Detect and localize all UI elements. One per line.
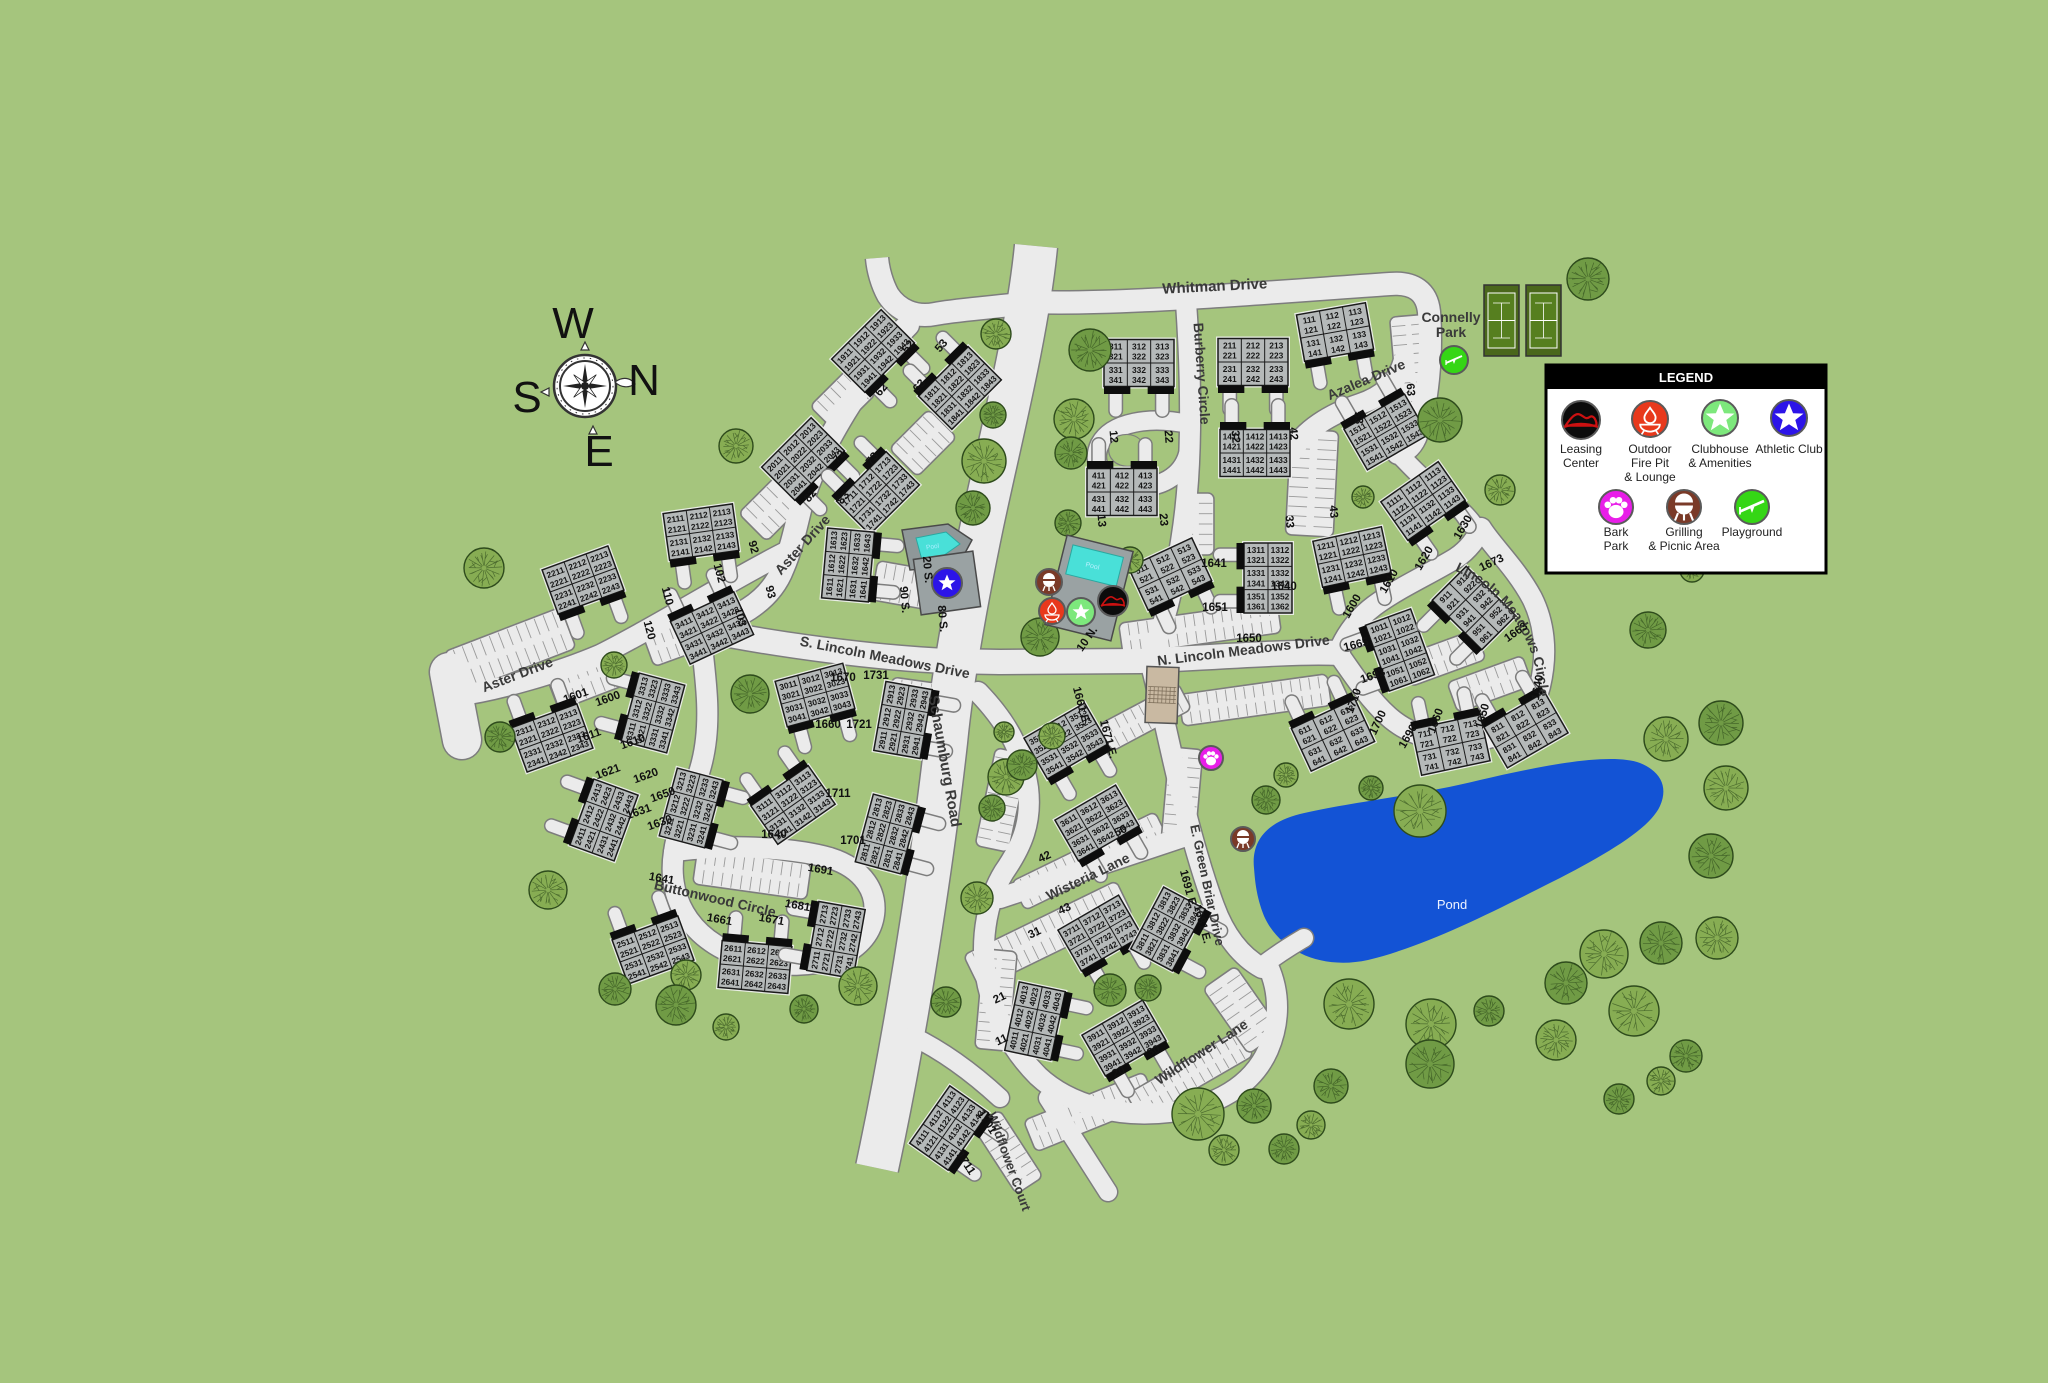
svg-text:222: 222 bbox=[1246, 351, 1260, 361]
svg-text:1352: 1352 bbox=[1271, 592, 1290, 602]
svg-text:1351: 1351 bbox=[1247, 592, 1266, 602]
svg-text:1432: 1432 bbox=[1246, 455, 1265, 465]
svg-text:1621: 1621 bbox=[834, 578, 846, 598]
svg-text:13: 13 bbox=[1094, 514, 1107, 528]
svg-text:Playground: Playground bbox=[1722, 525, 1783, 539]
svg-text:342: 342 bbox=[1132, 375, 1146, 385]
svg-text:1731: 1731 bbox=[863, 670, 889, 682]
svg-text:53: 53 bbox=[1351, 411, 1364, 425]
svg-text:Athletic Club: Athletic Club bbox=[1755, 442, 1823, 456]
svg-text:1622: 1622 bbox=[836, 554, 848, 574]
svg-text:1641: 1641 bbox=[857, 580, 869, 600]
svg-text:1332: 1332 bbox=[1271, 568, 1290, 578]
svg-text:1322: 1322 bbox=[1271, 555, 1290, 565]
svg-text:421: 421 bbox=[1092, 481, 1106, 491]
svg-text:63: 63 bbox=[1403, 383, 1416, 397]
svg-text:32: 32 bbox=[1228, 430, 1241, 444]
svg-text:& Amenities: & Amenities bbox=[1688, 456, 1751, 470]
svg-text:1423: 1423 bbox=[1269, 442, 1288, 452]
svg-text:1650: 1650 bbox=[1236, 633, 1262, 645]
svg-text:312: 312 bbox=[1132, 341, 1146, 351]
svg-text:12: 12 bbox=[1106, 430, 1119, 444]
svg-text:333: 333 bbox=[1155, 365, 1169, 375]
svg-text:2621: 2621 bbox=[723, 953, 743, 965]
svg-text:433: 433 bbox=[1138, 494, 1152, 504]
svg-text:1413: 1413 bbox=[1269, 431, 1288, 441]
svg-text:1640: 1640 bbox=[761, 829, 787, 841]
svg-text:223: 223 bbox=[1269, 351, 1283, 361]
svg-text:1433: 1433 bbox=[1269, 455, 1288, 465]
svg-text:413: 413 bbox=[1138, 470, 1152, 480]
svg-text:1660: 1660 bbox=[815, 719, 841, 731]
svg-text:241: 241 bbox=[1223, 374, 1237, 384]
svg-text:243: 243 bbox=[1269, 374, 1283, 384]
svg-text:E: E bbox=[584, 427, 613, 476]
svg-text:1431: 1431 bbox=[1222, 455, 1241, 465]
svg-text:43: 43 bbox=[1326, 505, 1339, 519]
svg-text:22: 22 bbox=[1161, 430, 1174, 444]
svg-text:2643: 2643 bbox=[767, 980, 787, 992]
svg-text:231: 231 bbox=[1223, 364, 1237, 374]
svg-text:Park: Park bbox=[1604, 539, 1630, 553]
svg-text:Bark: Bark bbox=[1604, 525, 1630, 539]
svg-text:431: 431 bbox=[1092, 494, 1106, 504]
svg-text:1311: 1311 bbox=[1247, 545, 1266, 555]
svg-text:& Picnic Area: & Picnic Area bbox=[1648, 539, 1720, 553]
svg-text:2622: 2622 bbox=[746, 955, 766, 967]
svg-text:1341: 1341 bbox=[1247, 578, 1266, 588]
svg-text:1412: 1412 bbox=[1246, 431, 1265, 441]
svg-text:42: 42 bbox=[1286, 427, 1299, 441]
svg-text:1422: 1422 bbox=[1246, 442, 1265, 452]
svg-text:1312: 1312 bbox=[1271, 545, 1290, 555]
svg-text:432: 432 bbox=[1115, 494, 1129, 504]
svg-text:2642: 2642 bbox=[744, 978, 764, 990]
svg-text:1441: 1441 bbox=[1222, 465, 1241, 475]
svg-text:33: 33 bbox=[1282, 515, 1295, 529]
svg-text:221: 221 bbox=[1223, 351, 1237, 361]
svg-text:422: 422 bbox=[1115, 481, 1129, 491]
svg-text:& Lounge: & Lounge bbox=[1624, 470, 1676, 484]
svg-text:411: 411 bbox=[1092, 470, 1106, 480]
svg-text:322: 322 bbox=[1132, 352, 1146, 362]
svg-text:Grilling: Grilling bbox=[1665, 525, 1702, 539]
svg-text:Outdoor: Outdoor bbox=[1628, 442, 1671, 456]
svg-text:442: 442 bbox=[1115, 504, 1129, 514]
svg-text:90 S.: 90 S. bbox=[897, 586, 911, 614]
svg-text:W: W bbox=[552, 299, 594, 348]
svg-text:1362: 1362 bbox=[1271, 602, 1290, 612]
svg-text:232: 232 bbox=[1246, 364, 1260, 374]
svg-text:N: N bbox=[628, 356, 660, 405]
svg-text:Pond: Pond bbox=[1437, 897, 1467, 912]
svg-text:412: 412 bbox=[1115, 470, 1129, 480]
svg-text:1321: 1321 bbox=[1247, 555, 1266, 565]
svg-text:Leasing: Leasing bbox=[1560, 442, 1602, 456]
svg-text:1721: 1721 bbox=[846, 719, 872, 731]
svg-text:331: 331 bbox=[1109, 365, 1123, 375]
svg-text:323: 323 bbox=[1155, 352, 1169, 362]
svg-text:1442: 1442 bbox=[1246, 465, 1265, 475]
svg-text:1651: 1651 bbox=[1202, 602, 1228, 614]
svg-text:233: 233 bbox=[1269, 364, 1283, 374]
svg-text:LEGEND: LEGEND bbox=[1659, 370, 1713, 385]
svg-text:441: 441 bbox=[1092, 504, 1106, 514]
svg-text:242: 242 bbox=[1246, 374, 1260, 384]
svg-text:1361: 1361 bbox=[1247, 602, 1266, 612]
svg-text:Clubhouse: Clubhouse bbox=[1691, 442, 1749, 456]
svg-text:211: 211 bbox=[1223, 340, 1237, 350]
svg-text:443: 443 bbox=[1138, 504, 1152, 514]
svg-text:S: S bbox=[512, 373, 541, 422]
svg-text:1331: 1331 bbox=[1247, 568, 1266, 578]
svg-text:212: 212 bbox=[1246, 340, 1260, 350]
svg-text:313: 313 bbox=[1155, 341, 1169, 351]
svg-text:1643: 1643 bbox=[861, 533, 873, 553]
svg-text:332: 332 bbox=[1132, 365, 1146, 375]
svg-text:213: 213 bbox=[1269, 340, 1283, 350]
svg-text:341: 341 bbox=[1109, 375, 1123, 385]
svg-text:20 S.: 20 S. bbox=[920, 556, 934, 584]
svg-text:Fire Pit: Fire Pit bbox=[1631, 456, 1670, 470]
svg-text:Center: Center bbox=[1563, 456, 1599, 470]
svg-text:423: 423 bbox=[1138, 481, 1152, 491]
svg-text:1701: 1701 bbox=[840, 835, 866, 847]
svg-text:1641: 1641 bbox=[1201, 558, 1227, 570]
svg-text:1670: 1670 bbox=[830, 672, 856, 684]
svg-text:1443: 1443 bbox=[1269, 465, 1288, 475]
svg-text:1623: 1623 bbox=[838, 531, 850, 551]
svg-text:1640: 1640 bbox=[1271, 581, 1297, 593]
svg-text:80 S.: 80 S. bbox=[935, 605, 949, 633]
svg-text:Connelly: Connelly bbox=[1421, 309, 1480, 325]
svg-text:2641: 2641 bbox=[721, 976, 741, 988]
svg-text:1642: 1642 bbox=[859, 556, 871, 576]
svg-text:Park: Park bbox=[1436, 324, 1467, 340]
svg-text:343: 343 bbox=[1155, 375, 1169, 385]
svg-text:23: 23 bbox=[1156, 513, 1169, 527]
svg-text:1711: 1711 bbox=[826, 788, 852, 800]
